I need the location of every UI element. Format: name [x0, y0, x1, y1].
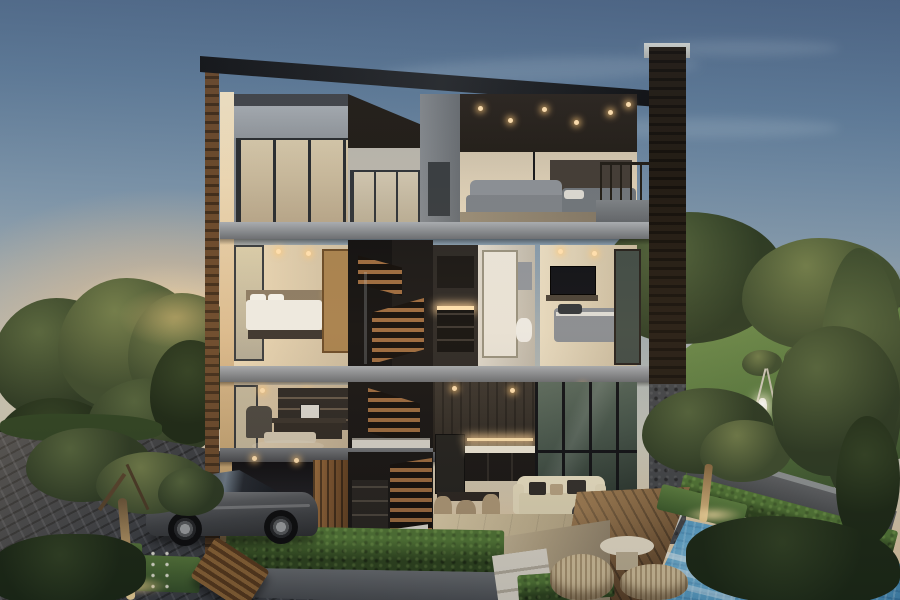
bed-base — [248, 330, 322, 339]
mirror — [518, 262, 532, 290]
soffit — [234, 94, 348, 106]
floor-slab — [220, 366, 649, 382]
downlight — [452, 386, 457, 391]
downlight — [478, 106, 483, 111]
tv-screen — [550, 266, 596, 295]
screen-door — [435, 434, 465, 494]
stairwell — [348, 240, 433, 366]
downlight — [510, 388, 515, 393]
under-cabinet-light — [467, 438, 533, 441]
wicker-ottoman — [620, 564, 688, 600]
top-bedroom-ceiling — [460, 94, 637, 152]
downlight — [276, 249, 281, 254]
storage-cabinet — [352, 480, 388, 528]
tv-console — [546, 295, 598, 301]
carport-light — [294, 458, 299, 463]
downlight — [508, 118, 513, 123]
downlight — [626, 102, 631, 107]
glazing — [350, 170, 422, 224]
middle-bedroom — [234, 245, 348, 366]
right-timber-fin — [649, 47, 686, 387]
base-cabinet — [437, 310, 474, 352]
toilet — [516, 318, 532, 342]
glazed-doors — [236, 138, 350, 226]
wicker-ottoman — [550, 554, 614, 600]
study — [234, 385, 348, 452]
downlight — [542, 107, 547, 112]
floor-slab — [220, 222, 649, 239]
bathroom-door — [482, 250, 518, 358]
bed-pillow — [564, 190, 584, 199]
carport-light — [252, 456, 257, 461]
downlight — [592, 251, 597, 256]
shaded-room — [348, 148, 420, 222]
scene — [0, 0, 900, 600]
balcony-parapet — [596, 200, 649, 224]
bathroom — [478, 245, 535, 366]
car-wheel — [168, 512, 202, 546]
foreground-foliage — [0, 534, 146, 600]
pantry-nook — [433, 245, 478, 366]
sofa-pillow — [550, 484, 563, 495]
tv-bedroom — [540, 245, 637, 366]
downlight — [558, 249, 563, 254]
stairwell-lower — [348, 382, 433, 452]
dark-soffit-wedge — [348, 94, 420, 152]
downlight — [574, 120, 579, 125]
grey-pier — [420, 94, 460, 222]
glazing-transom — [535, 450, 637, 453]
pier-window — [428, 162, 450, 216]
sapling-canopy — [742, 350, 782, 376]
downlight — [608, 110, 613, 115]
downlight — [260, 388, 265, 393]
roller-shade — [234, 106, 348, 138]
bed-duvet — [246, 300, 322, 330]
upper-cabinet — [437, 256, 474, 288]
glass-balustrade — [364, 272, 367, 364]
top-left-room — [234, 94, 348, 222]
kitchen-counter — [465, 446, 535, 453]
bed-pillow — [558, 304, 582, 314]
window — [614, 249, 641, 365]
downlight — [306, 251, 311, 256]
sofa-pillow — [529, 482, 546, 495]
car-wheel — [264, 510, 298, 544]
